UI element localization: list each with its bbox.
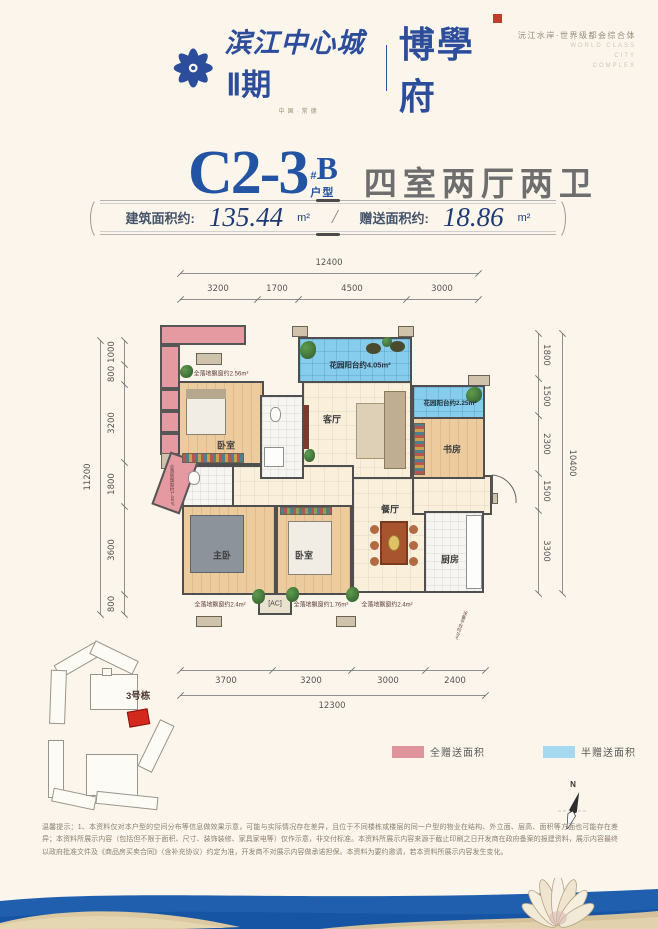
- dim-right-total: 10400: [567, 449, 577, 476]
- seashell-graphic: [512, 878, 604, 929]
- dim-bottom-seg: 2400: [444, 676, 466, 686]
- kitchen-counter: [466, 515, 482, 589]
- bar-ornament-bottom: [316, 233, 340, 236]
- chair: [370, 541, 379, 550]
- site-building: [49, 670, 67, 725]
- column: [196, 616, 222, 627]
- chair: [409, 557, 418, 566]
- brand-header: 滨江中心城Ⅱ期 中国·常德 博學府: [170, 30, 490, 105]
- bay-window-top-left: [160, 325, 246, 345]
- area-info-bar: 建筑面积约: 135.44 m² / 赠送面积约: 18.86 m²: [100, 200, 556, 235]
- master-bed: [190, 515, 244, 573]
- room-label-living: 客厅: [323, 413, 341, 426]
- brand-cn: 滨江中心城: [224, 28, 364, 58]
- full-gift-label: 全赠送面积: [430, 744, 485, 759]
- dim-line: [180, 695, 485, 696]
- dim-bottom-total: 12300: [318, 701, 345, 711]
- red-seal-icon: [493, 14, 502, 23]
- wardrobe: [182, 453, 244, 463]
- tagline-en-2: CITY: [518, 51, 636, 61]
- legend: 全赠送面积 半赠送面积: [392, 744, 636, 759]
- dim-line: [100, 340, 101, 614]
- dim-right-seg: 2300: [541, 433, 551, 455]
- tagline: 沅江水岸·世界级都会综合体 WORLD CLASS CITY COMPLEX: [518, 30, 636, 72]
- gift-area-unit: m²: [518, 212, 531, 224]
- highlighted-building: [127, 708, 150, 727]
- dim-left-seg: 3600: [107, 539, 117, 561]
- chair: [409, 541, 418, 550]
- dim-line: [538, 333, 539, 593]
- dim-left-seg: 3200: [107, 412, 117, 434]
- brand-divider: [386, 45, 387, 91]
- entry-area: [412, 475, 492, 515]
- column: [398, 326, 414, 337]
- dim-left-seg: 800: [107, 596, 117, 612]
- dim-tick: [475, 270, 482, 277]
- bay-label-bottom-mid: 全落地飘窗约1.76m²: [294, 600, 349, 609]
- site-plan: 3号栋: [28, 642, 178, 804]
- site-building: [102, 668, 112, 676]
- dim-line: [124, 340, 125, 614]
- dim-right-seg: 1500: [541, 385, 551, 407]
- planter-pot: [366, 343, 381, 354]
- area-bar-content: 建筑面积约: 135.44 m² / 赠送面积约: 18.86 m²: [100, 203, 556, 232]
- full-gift-swatch: [392, 746, 424, 758]
- north-label: N: [556, 780, 590, 789]
- dim-tick: [475, 296, 482, 303]
- plant-icon: [252, 589, 265, 604]
- dim-bottom-seg: 3700: [215, 676, 237, 686]
- bay-label-bottom-left: 全落地飘窗约2.4m²: [194, 600, 245, 609]
- brand-phase: Ⅱ期: [226, 69, 271, 102]
- bar-ornament-top: [316, 199, 340, 202]
- plant-icon: [382, 337, 392, 347]
- column: [196, 353, 222, 365]
- built-area-value: 135.44: [209, 204, 283, 231]
- room-label-bedroom-top: 卧室: [217, 439, 235, 452]
- ac-label: [AC]: [268, 601, 282, 608]
- dim-right-seg: 1500: [541, 480, 551, 502]
- balcony-label-top: 花园阳台约4.05m²: [329, 360, 390, 371]
- bay-label-bottom-right: 全落地飘窗约2.4m²: [361, 600, 412, 609]
- site-building: [95, 791, 158, 810]
- sub-code: B: [317, 150, 338, 186]
- floor-plan: 卧室 客厅 书房 主卧 卧室 餐厅 厨房 花园阳台约4.05m² 花园阳台约2.…: [160, 325, 510, 665]
- legend-item-half-gift: 半赠送面积: [543, 744, 636, 759]
- bookshelf: [414, 423, 425, 475]
- dim-top-total: 12400: [315, 258, 342, 268]
- chair: [370, 557, 379, 566]
- toilet: [270, 407, 281, 422]
- brand-name: 博學府: [399, 16, 490, 120]
- toilet: [188, 471, 200, 485]
- tagline-cn: 沅江水岸·世界级都会综合体: [518, 30, 636, 41]
- area-divider: /: [332, 206, 338, 229]
- tagline-en-3: COMPLEX: [518, 61, 636, 71]
- bed-headboard: [186, 389, 226, 399]
- dim-bottom-seg: 3200: [300, 676, 322, 686]
- site-building: [89, 640, 139, 675]
- plant-icon: [304, 449, 315, 462]
- site-building: [86, 754, 138, 796]
- room-label-kitchen: 厨房: [441, 553, 459, 566]
- room-label-master: 主卧: [213, 549, 231, 562]
- dim-tick: [482, 667, 489, 674]
- dim-left-seg: 800: [107, 366, 117, 382]
- dim-line: [180, 670, 485, 671]
- built-area-unit: m²: [297, 212, 310, 224]
- unit-code: C2-3: [188, 147, 307, 200]
- dim-line: [180, 273, 478, 274]
- dim-bottom-seg: 3000: [377, 676, 399, 686]
- legend-item-full-gift: 全赠送面积: [392, 744, 485, 759]
- plant-icon: [300, 341, 316, 359]
- built-area-label: 建筑面积约:: [126, 208, 195, 227]
- sofa: [384, 391, 406, 469]
- shower: [264, 447, 284, 467]
- layout-description: 四室两厅两卫: [364, 167, 598, 200]
- plant-icon: [180, 365, 193, 378]
- dim-top-seg: 3200: [207, 284, 229, 294]
- room-label-bedroom-bottom: 卧室: [295, 549, 313, 562]
- dim-right-seg: 1800: [541, 344, 551, 366]
- unit-label: 户型: [310, 184, 334, 200]
- column: [292, 326, 308, 337]
- bay-label-top-left: 全落地飘窗约2.56m²: [194, 369, 249, 378]
- bay-label-left: 全落地飘窗约1.44m²: [169, 464, 175, 505]
- bay-window-left: [160, 345, 180, 389]
- building-label: 3号栋: [126, 688, 150, 702]
- site-building: [137, 719, 174, 773]
- tv-cabinet: [304, 405, 309, 449]
- wardrobe: [280, 507, 332, 515]
- column: [336, 616, 356, 627]
- equipment-label: 设备平台约2m²: [453, 610, 469, 640]
- half-gift-swatch: [543, 746, 575, 758]
- chair: [409, 525, 418, 534]
- brand-script-block: 滨江中心城Ⅱ期 中国·常德: [224, 21, 374, 115]
- dim-top-seg: 3000: [431, 284, 453, 294]
- dim-top-seg: 1700: [266, 284, 288, 294]
- room-label-dining: 餐厅: [381, 503, 399, 516]
- dim-left-seg: 1000: [107, 341, 117, 363]
- chair: [370, 525, 379, 534]
- balcony-label-right: 花园阳台约2.25m²: [423, 397, 476, 407]
- brand-subtitle: 中国·常德: [224, 106, 374, 115]
- room-label-study: 书房: [443, 443, 461, 456]
- dim-tick: [482, 692, 489, 699]
- dim-left-total: 11200: [83, 463, 93, 490]
- planter-pot: [390, 341, 405, 352]
- dim-line: [180, 299, 478, 300]
- dim-line: [562, 333, 563, 593]
- entry-door-arc: [490, 473, 520, 505]
- lotus-logo-icon: [170, 39, 216, 97]
- tagline-en-1: WORLD CLASS: [518, 41, 636, 51]
- dim-top-seg: 4500: [341, 284, 363, 294]
- dim-left-seg: 1800: [107, 473, 117, 495]
- gift-area-label: 赠送面积约:: [360, 208, 429, 227]
- gift-area-value: 18.86: [443, 204, 504, 231]
- unit-title: C2-3 #B 户型 四室两厅两卫: [188, 140, 598, 200]
- unit-sub-code-block: #B 户型: [310, 154, 337, 200]
- dim-right-seg: 3300: [541, 540, 551, 562]
- table-decor: [388, 535, 400, 551]
- half-gift-label: 半赠送面积: [581, 744, 636, 759]
- disclaimer-text: 温馨提示：1、本资料仅对本户型的空间分布等信息做效果示意，可能与实际情况存在差异…: [42, 822, 618, 859]
